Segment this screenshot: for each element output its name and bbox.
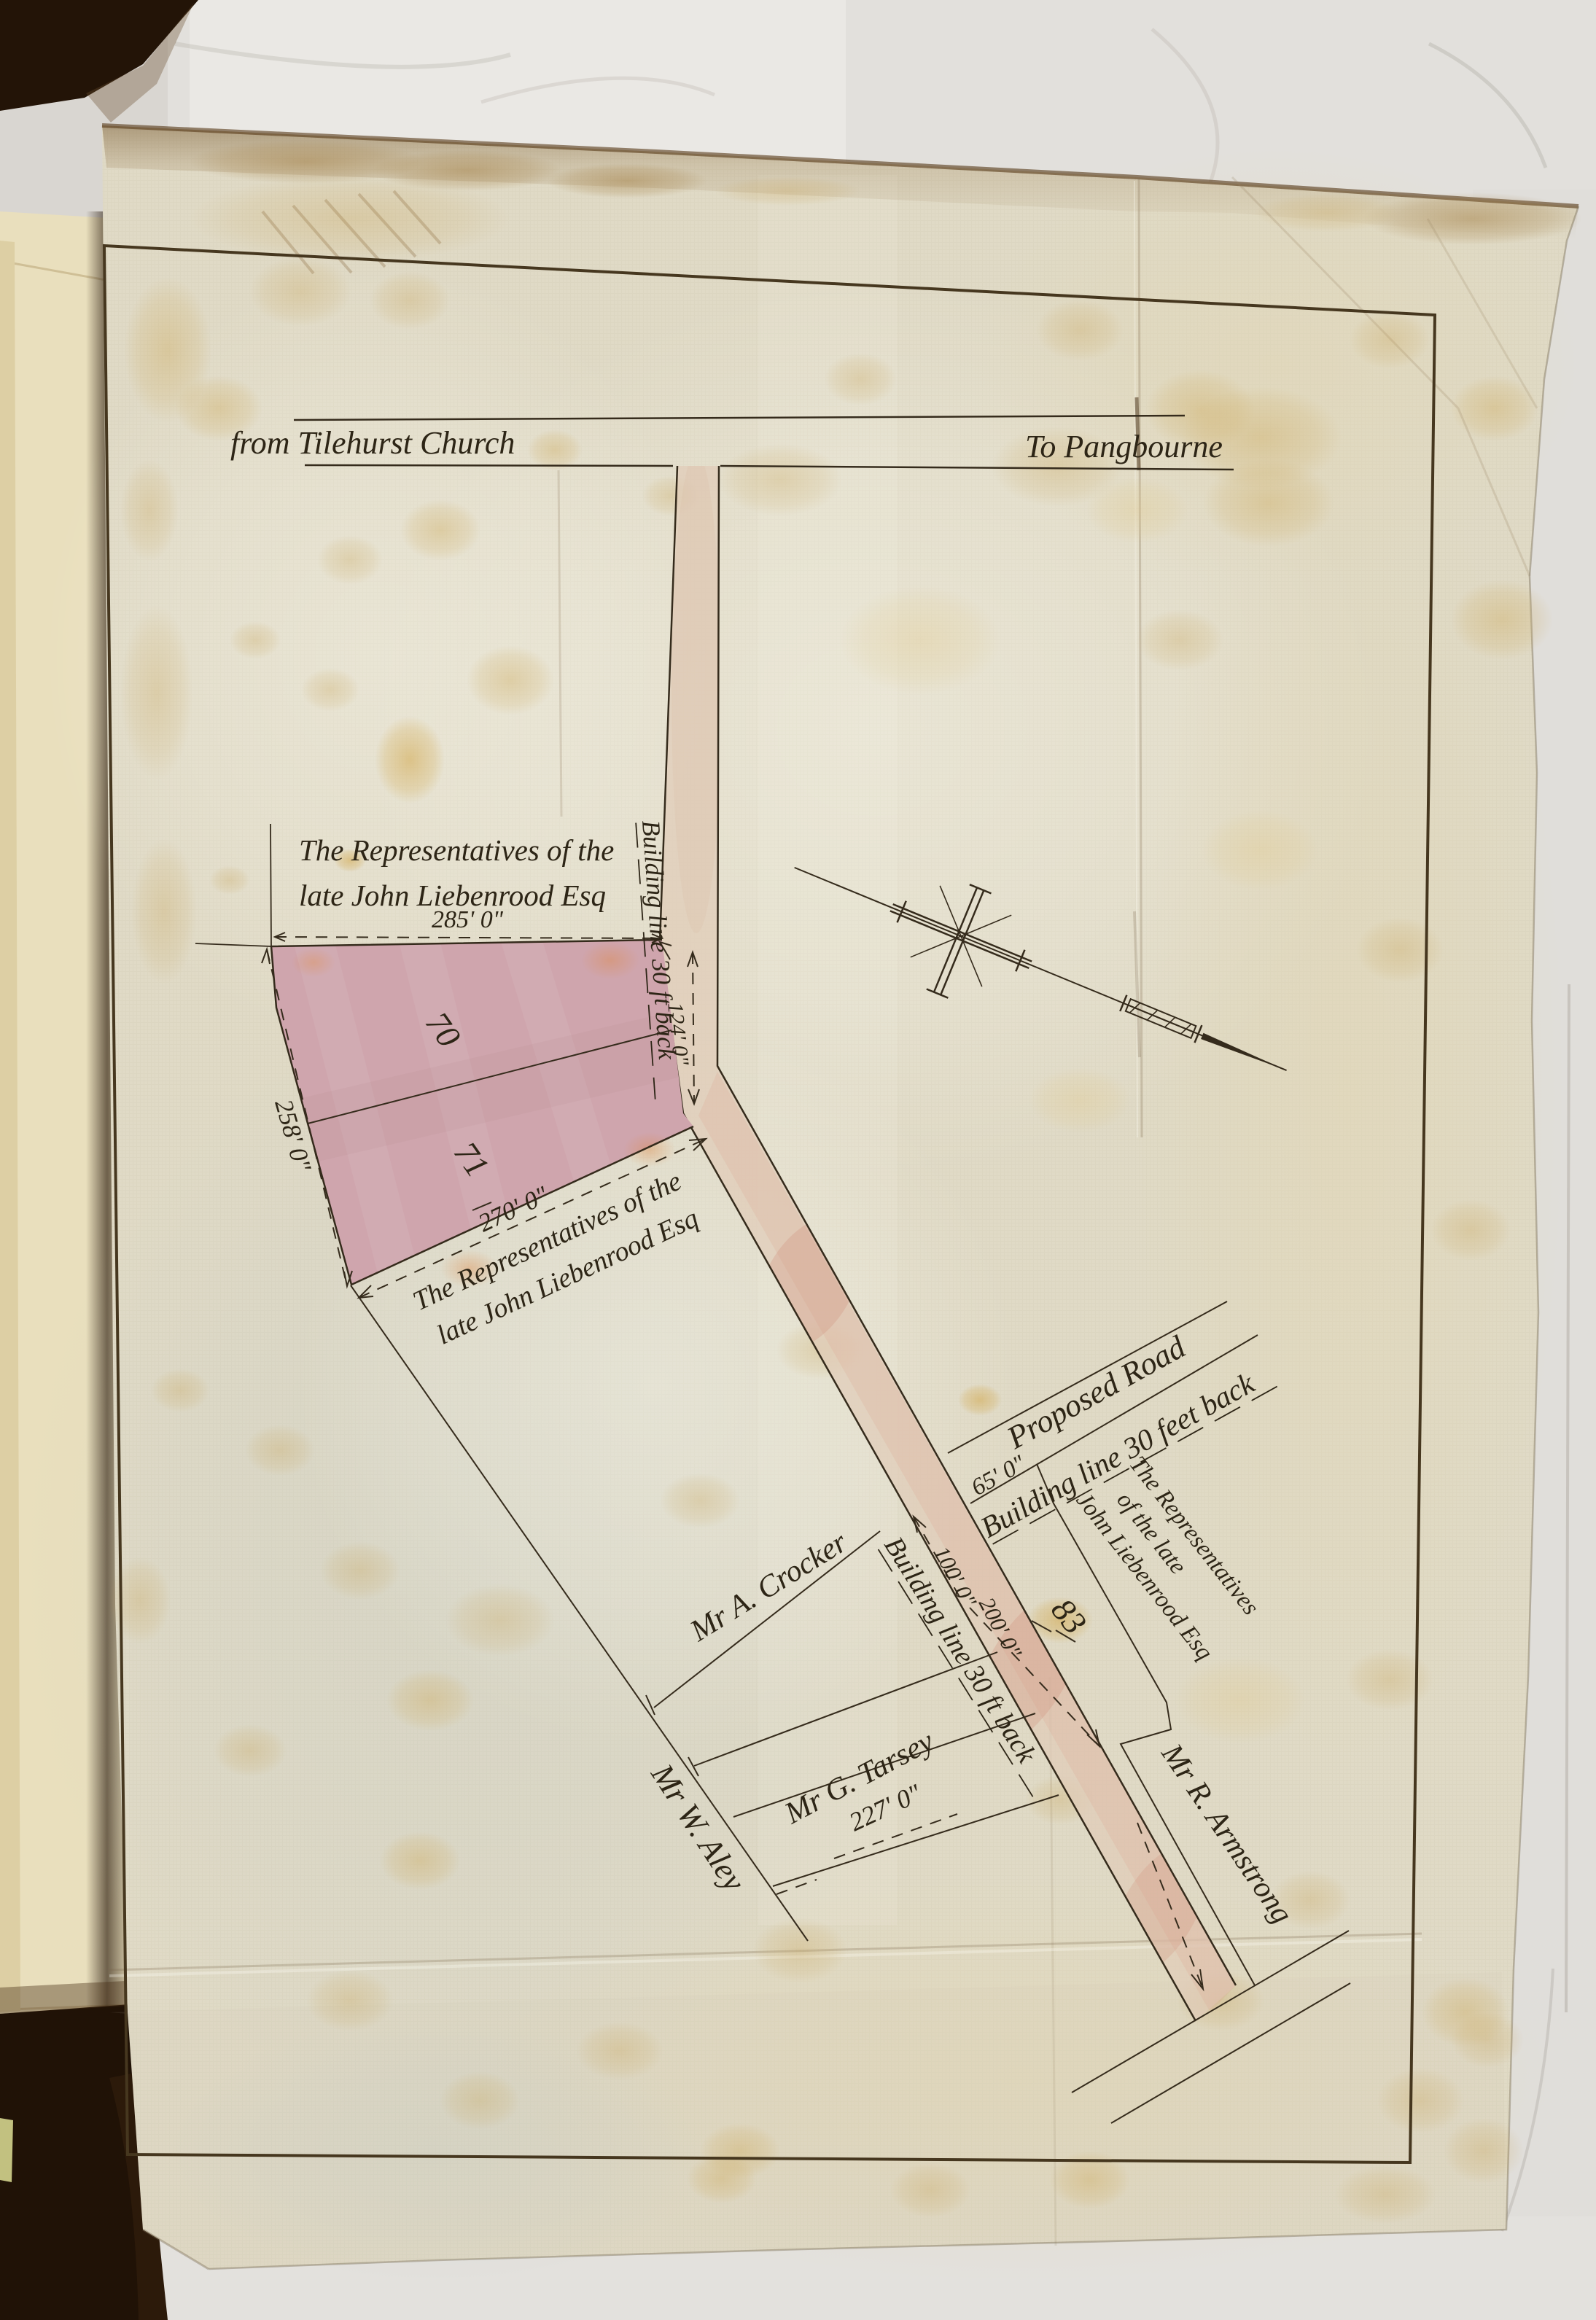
svg-text:285' 0": 285' 0"	[432, 906, 504, 933]
svg-text:from Tilehurst Church: from Tilehurst Church	[230, 425, 515, 461]
svg-text:The Representatives of the: The Representatives of the	[299, 833, 614, 867]
svg-text:To Pangbourne: To Pangbourne	[1025, 429, 1223, 464]
